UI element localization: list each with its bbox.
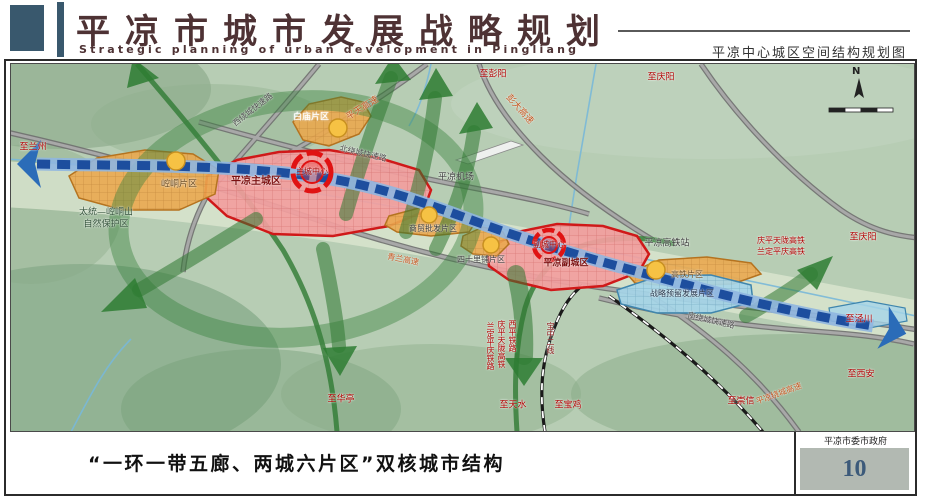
map-label: 至西安 — [847, 371, 874, 380]
map-label: 至宝鸡 — [554, 402, 581, 411]
map-label: 平凉机场 — [438, 174, 474, 183]
map-label: 副城中心 — [533, 241, 565, 249]
map-label: 至庆阳 — [849, 234, 876, 243]
map-label: 白庙片区 — [293, 114, 329, 123]
map-label: 青兰高速 — [387, 253, 420, 267]
logo-bar — [57, 2, 64, 57]
map-label: 至彭阳 — [479, 71, 506, 80]
map-label: 平凉高铁站 — [644, 240, 689, 249]
map-label: 至兰州 — [19, 144, 46, 153]
map-label: 崆峒片区 — [161, 181, 197, 190]
map-labels-layer: 至兰州至彭阳至庆阳至庆阳至泾川至西安至崇信至天水至宝鸡至华亭西绕城快速路平天高速… — [11, 64, 914, 431]
logo-square — [10, 5, 44, 51]
map-label: 西平铁路 — [508, 320, 516, 352]
authority-label: 平凉市委市政府 — [796, 434, 915, 447]
map-label: 宝中二线 — [546, 322, 554, 354]
map-label: 商贸批发片区 — [409, 225, 457, 233]
structure-caption: “一环一带五廊、两城六片区”双核城市结构 — [88, 449, 505, 476]
map-label: 高铁片区 — [671, 271, 703, 279]
map-label: 西绕城快速路 — [232, 92, 275, 128]
map-panel[interactable]: 至兰州至彭阳至庆阳至庆阳至泾川至西安至崇信至天水至宝鸡至华亭西绕城快速路平天高速… — [10, 63, 915, 432]
map-label: 兰定平庆铁路 — [486, 322, 494, 370]
map-label: 平凉副城区 — [543, 260, 588, 269]
page-subtitle-en: Strategic planning of urban development … — [79, 43, 579, 56]
page-number-box: 10 — [800, 448, 909, 490]
map-label: 自然保护区 — [83, 221, 128, 230]
map-label: 至天水 — [499, 402, 526, 411]
title-block: 平凉市委市政府 10 — [794, 432, 915, 494]
map-label: 平凉主城区 — [231, 177, 281, 187]
map-label: 至崇信 — [727, 398, 754, 407]
map-label: 南绕城快速路 — [687, 312, 736, 331]
map-label: 彭大高速 — [504, 94, 535, 127]
map-label: 兰定平庆高铁 — [757, 248, 805, 256]
compass-n-label: N — [852, 66, 860, 77]
page: 平凉市城市发展战略规划 Strategic planning of urban … — [0, 0, 925, 500]
page-number: 10 — [843, 456, 867, 483]
map-label: 平天高速 — [345, 96, 380, 123]
map-label: 太统—崆峒山 — [79, 209, 133, 218]
map-label: 平凉绕城高速 — [755, 382, 803, 406]
map-label: 战略预留发展片区 — [650, 290, 714, 298]
map-label: 主城中心 — [296, 168, 328, 176]
map-label: 北绕城快速路 — [339, 145, 388, 164]
map-label: 四十里铺片区 — [457, 256, 505, 264]
map-label: 至华亭 — [327, 396, 354, 405]
map-label: 庆平天陇高铁 — [497, 320, 505, 368]
header-rule — [618, 30, 910, 32]
map-label: 庆平天陇高铁 — [757, 237, 805, 245]
map-label: 至泾川 — [845, 316, 872, 325]
map-label: 至庆阳 — [647, 74, 674, 83]
